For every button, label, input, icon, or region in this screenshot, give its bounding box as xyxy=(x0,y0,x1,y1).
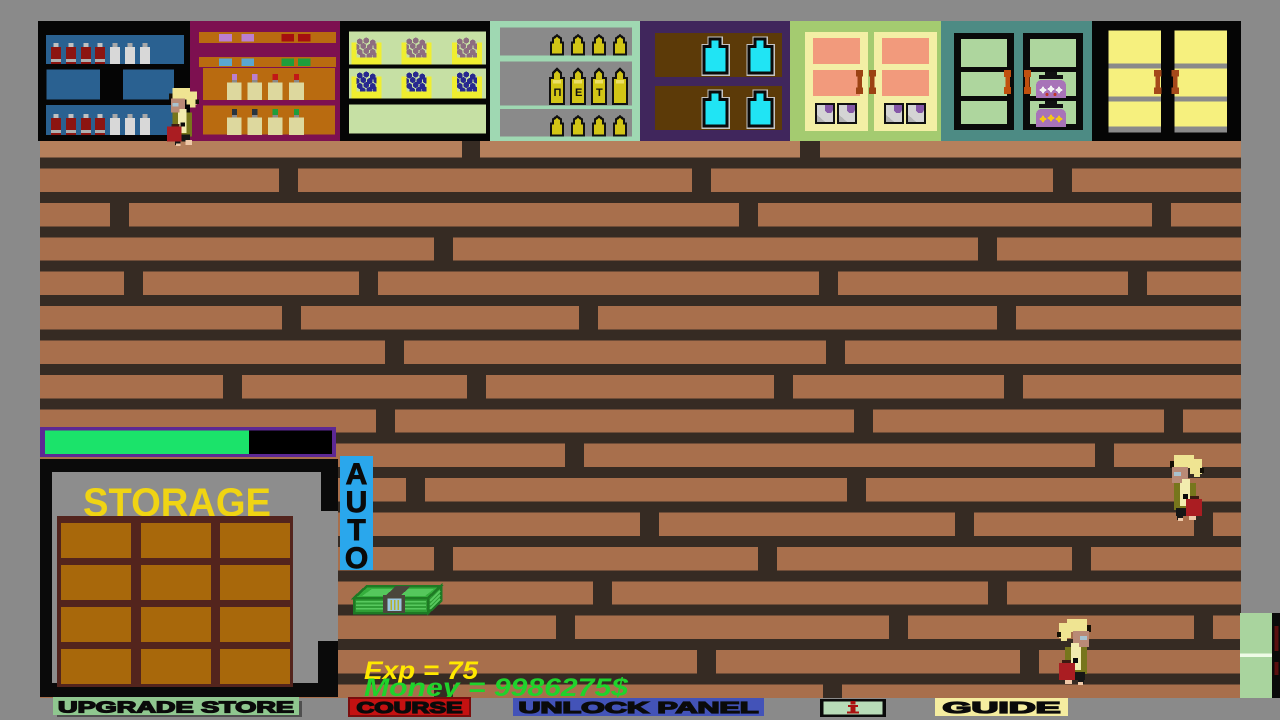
svg-text:UNLOCK PANEL: UNLOCK PANEL xyxy=(519,700,759,717)
svg-text:T: T xyxy=(596,87,603,99)
svg-text:O: O xyxy=(345,542,368,575)
svg-text:UPGRADE STORE: UPGRADE STORE xyxy=(58,700,295,717)
svg-text:Π: Π xyxy=(554,87,562,99)
svg-text:GUIDE: GUIDE xyxy=(943,700,1062,717)
svg-text:E: E xyxy=(575,87,582,99)
svg-text:COURSE: COURSE xyxy=(357,700,464,717)
